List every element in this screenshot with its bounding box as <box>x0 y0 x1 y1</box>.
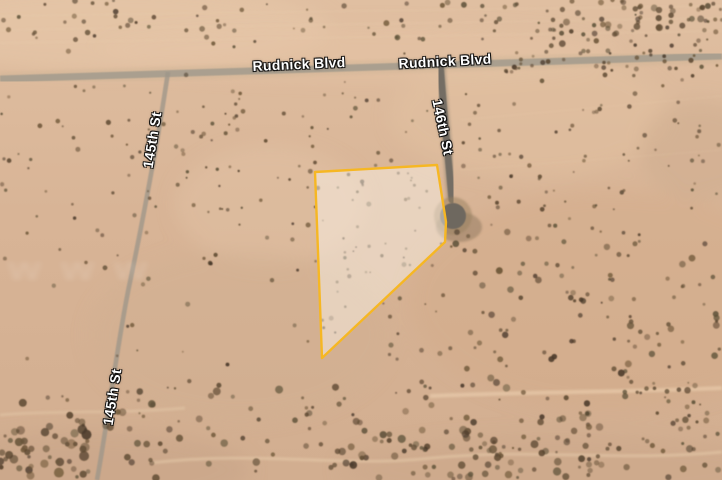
satellite-map[interactable]: www Rudnick Blvd Rudnick Blvd 146th St 1… <box>0 0 722 480</box>
terrain-layer <box>0 0 722 480</box>
